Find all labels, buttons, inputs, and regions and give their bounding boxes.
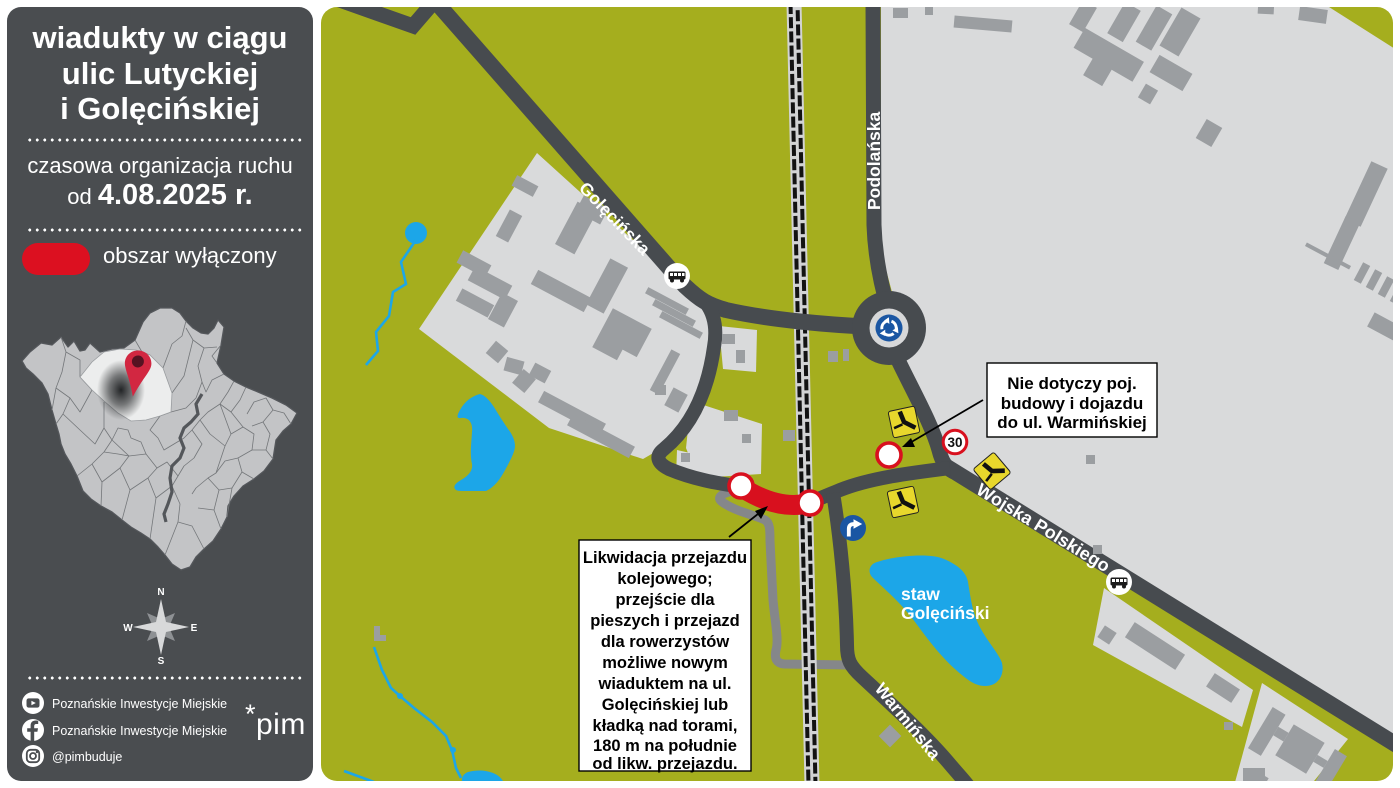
- svg-text:Podolańska: Podolańska: [864, 112, 884, 210]
- svg-text:do ul. Warmińskiej: do ul. Warmińskiej: [997, 413, 1147, 432]
- svg-text:dla rowerzystów: dla rowerzystów: [601, 633, 730, 651]
- svg-text:*: *: [245, 699, 256, 729]
- svg-text:Poznańskie Inwestycje Miejskie: Poznańskie Inwestycje Miejskie: [52, 724, 227, 738]
- svg-text:E: E: [191, 623, 198, 634]
- svg-text:Golęcińskiej lub: Golęcińskiej lub: [602, 696, 729, 714]
- svg-text:Poznańskie Inwestycje Miejskie: Poznańskie Inwestycje Miejskie: [52, 697, 227, 711]
- svg-text:@pimbuduje: @pimbuduje: [52, 750, 122, 764]
- svg-text:budowy i dojazdu: budowy i dojazdu: [1001, 394, 1144, 413]
- svg-text:180 m na południe: 180 m na południe: [593, 737, 737, 755]
- svg-text:pieszych i przejazd: pieszych i przejazd: [590, 612, 739, 630]
- svg-text:Nie dotyczy poj.: Nie dotyczy poj.: [1007, 374, 1136, 393]
- svg-text:30: 30: [947, 435, 962, 450]
- svg-text:W: W: [123, 623, 133, 634]
- svg-text:Golęciński: Golęciński: [901, 603, 990, 623]
- svg-text:kolejowego;: kolejowego;: [617, 570, 712, 588]
- svg-text:pim: pim: [256, 708, 306, 741]
- svg-text:wiaduktem na ul.: wiaduktem na ul.: [598, 675, 732, 693]
- svg-text:S: S: [158, 656, 165, 667]
- svg-text:przejście dla: przejście dla: [615, 591, 715, 609]
- svg-text:kładką nad torami,: kładką nad torami,: [593, 717, 738, 735]
- svg-text:N: N: [157, 587, 164, 598]
- svg-text:od likw. przejazdu.: od likw. przejazdu.: [592, 755, 737, 773]
- svg-text:możliwe nowym: możliwe nowym: [602, 654, 728, 672]
- svg-text:staw: staw: [901, 584, 940, 604]
- svg-text:Likwidacja przejazdu: Likwidacja przejazdu: [583, 549, 747, 567]
